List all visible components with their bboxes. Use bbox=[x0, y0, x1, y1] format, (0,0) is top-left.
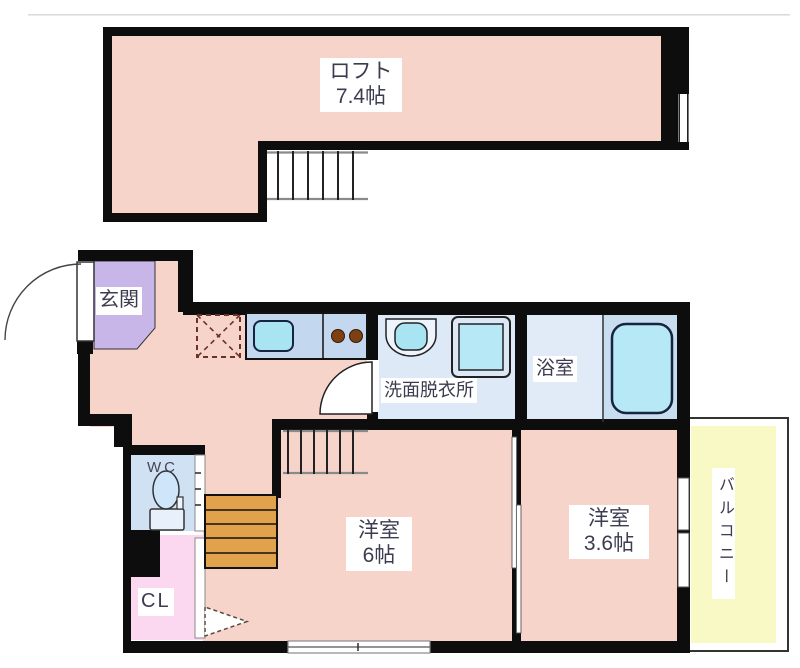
kitchen-counter-icon bbox=[246, 313, 367, 359]
top-border-line bbox=[28, 14, 790, 16]
washing-machine-icon bbox=[452, 317, 510, 377]
loft-ladder-icon bbox=[267, 151, 368, 200]
bath-label: 浴室 bbox=[533, 356, 577, 382]
burner-icon bbox=[332, 330, 345, 343]
balcony-window-icon bbox=[678, 478, 689, 587]
entrance-door-icon bbox=[5, 262, 94, 341]
closet-door-icon bbox=[195, 538, 205, 638]
burner-icon bbox=[350, 330, 363, 343]
closet-label: CL bbox=[138, 588, 174, 616]
balcony bbox=[687, 418, 788, 651]
washbasin-icon bbox=[386, 319, 436, 356]
kitchen-sink-icon bbox=[254, 321, 293, 351]
stairs-icon bbox=[205, 495, 277, 568]
entrance-label: 玄関 bbox=[96, 287, 142, 315]
floorplan: ロフト 7.4帖 玄関 洗面脱衣所 浴室 WC CL 洋室 6帖 洋室 3.6帖… bbox=[0, 0, 800, 668]
balcony-label: バルコニー bbox=[712, 468, 735, 599]
room6-label: 洋室 6帖 bbox=[346, 517, 412, 571]
washroom-label: 洗面脱衣所 bbox=[381, 378, 477, 403]
room36-label: 洋室 3.6帖 bbox=[569, 505, 649, 559]
loft-window-icon bbox=[678, 94, 689, 142]
wc-label: WC bbox=[144, 457, 181, 479]
loft-label: ロフト 7.4帖 bbox=[320, 58, 402, 112]
room6-window-icon bbox=[288, 641, 430, 653]
loft-plan bbox=[103, 27, 689, 222]
wc-door-icon bbox=[195, 455, 205, 531]
bathtub-icon bbox=[612, 324, 672, 413]
